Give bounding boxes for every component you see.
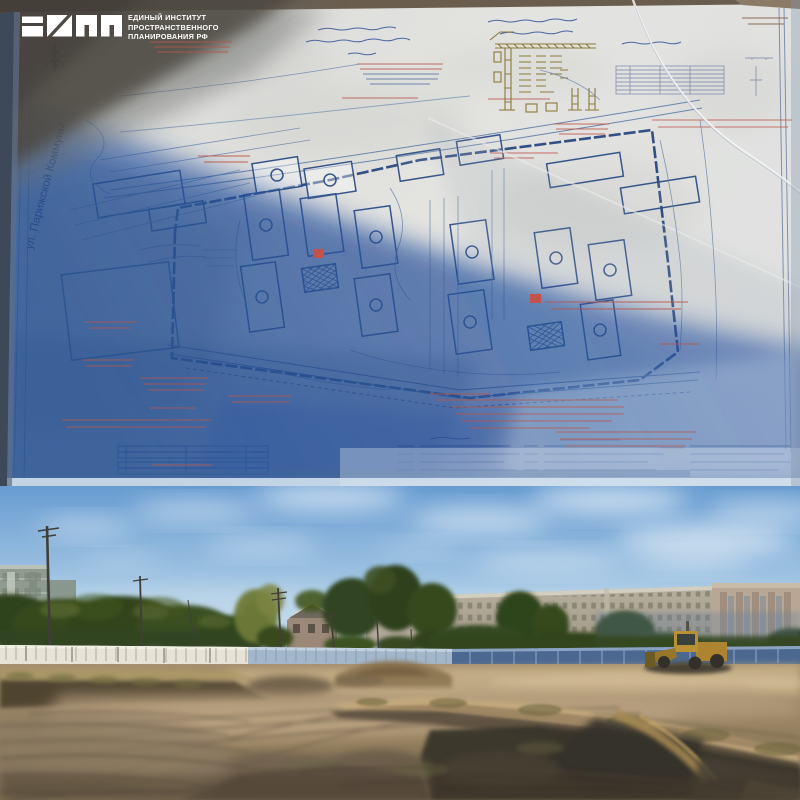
svg-text:ПРОСТРАНСТВЕННОГО: ПРОСТРАНСТВЕННОГО: [128, 23, 219, 32]
svg-text:ПЛАНИРОВАНИЯ РФ: ПЛАНИРОВАНИЯ РФ: [128, 32, 208, 41]
svg-text:ЕДИНЫЙ ИНСТИТУТ: ЕДИНЫЙ ИНСТИТУТ: [128, 13, 206, 22]
